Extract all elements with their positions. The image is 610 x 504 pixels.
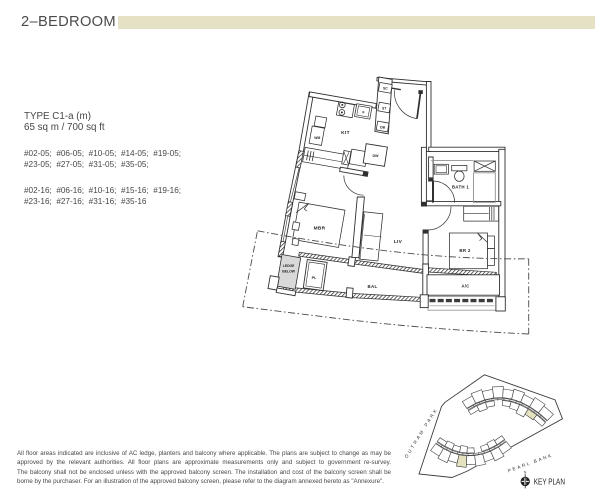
svg-text:BR 2: BR 2 [459,248,470,253]
svg-text:WM: WM [314,136,320,140]
svg-text:A/C: A/C [461,284,469,289]
svg-text:LEDGE: LEDGE [283,264,295,268]
svg-text:LIV: LIV [394,239,403,245]
svg-text:PEARL BANK: PEARL BANK [507,452,554,473]
svg-text:DB: DB [380,125,385,129]
svg-text:BELOW: BELOW [282,270,295,274]
svg-text:KIT: KIT [341,130,350,136]
svg-text:N: N [524,471,527,475]
svg-text:PL: PL [312,276,318,280]
svg-text:KEY PLAN: KEY PLAN [534,478,565,487]
svg-text:MBR: MBR [314,226,326,232]
svg-text:BATH 1: BATH 1 [452,184,470,189]
svg-text:SC: SC [383,87,388,91]
svg-text:DW: DW [373,154,380,158]
svg-text:BAL: BAL [368,284,378,289]
